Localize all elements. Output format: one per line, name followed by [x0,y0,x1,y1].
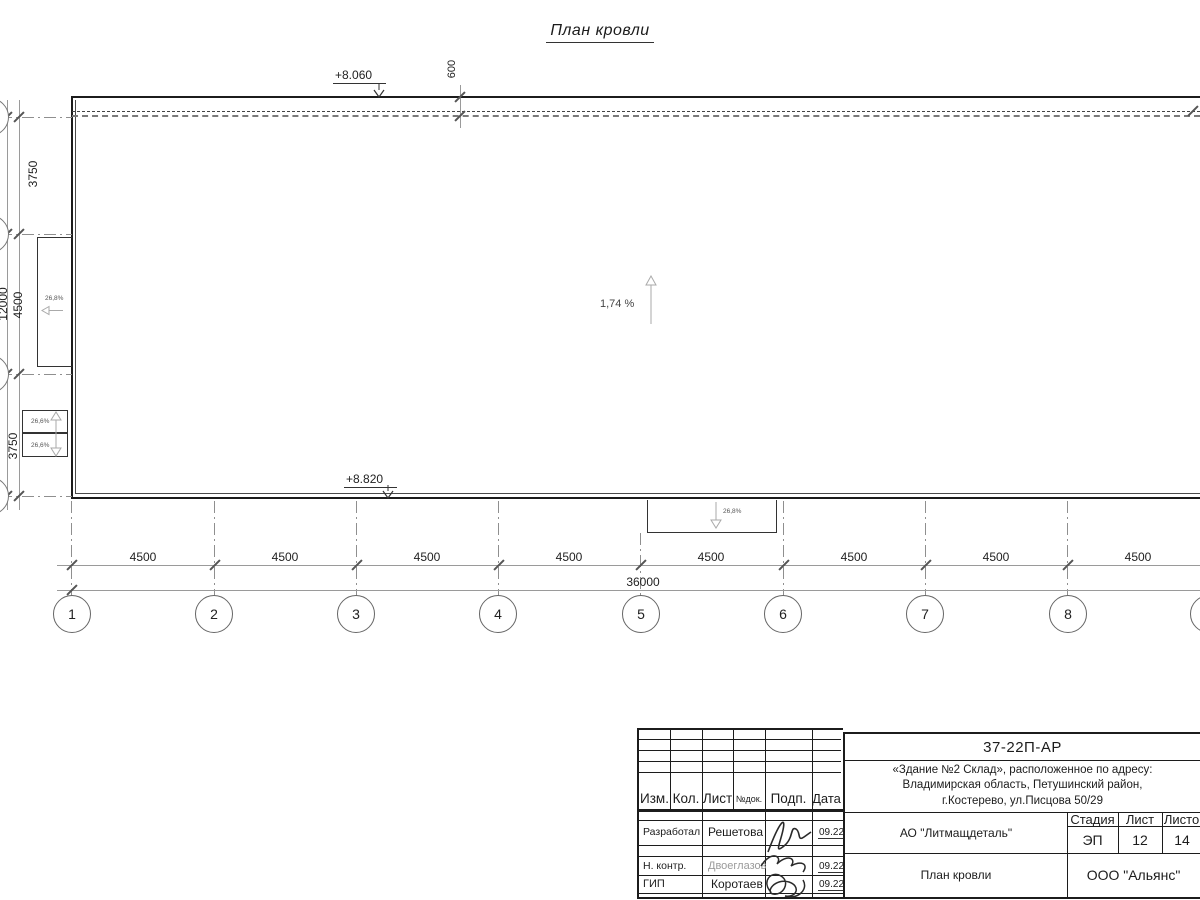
row-line-d [0,496,72,497]
tb-line [702,812,703,897]
left-canopy-slope-label: 26,8% [45,295,63,302]
sheets-value-cell: 14 [1162,826,1200,853]
rev-header-kol: Кол. [670,788,702,809]
left-canopy-arrow-icon [41,305,64,316]
elevation-top-arrow-icon [371,84,387,98]
staff-role-developer: Разработал [643,826,700,838]
grid-line-6 [783,501,784,596]
sheet-value: 12 [1132,832,1148,848]
left-lower-double-arrow-icon [50,411,62,457]
left-dim-label-2: 4500 [11,284,25,326]
label: Дата [812,791,841,806]
axis-bubble-8: 8 [1049,595,1087,633]
elevation-bottom-arrow-icon [380,485,396,499]
axis-number: 4 [494,606,502,622]
axis-number: 1 [68,606,76,622]
axis-number: 2 [210,606,218,622]
date-value: 09.22 [818,861,845,873]
bottom-canopy-arrow-icon [710,502,722,529]
row-line-a [0,117,72,118]
drawing-name-cell: План кровли [845,853,1067,897]
main-slope-label: 1,74 % [600,298,634,310]
staff-role-ncontrol: Н. контр. [643,860,686,872]
sheets-value: 14 [1174,832,1190,848]
axis-number: 7 [921,606,929,622]
axis-bubble-6: 6 [764,595,802,633]
axis-bubble-1: 1 [53,595,91,633]
sheets-header-cell: Листов [1162,812,1200,826]
doc-number: 37-22П-АР [983,739,1062,756]
bay-dim-label: 4500 [783,550,925,564]
grid-line-2 [214,501,215,596]
bay-dim-label: 4500 [72,550,214,564]
tb-line [639,761,841,762]
titleblock-staff-table: Разработал Решетова 09.22 Н. контр. Двое… [637,811,843,899]
main-slope-arrow-icon [645,275,657,325]
sheet-value-cell: 12 [1118,826,1162,853]
label: №док. [736,794,762,804]
project-address-cell: «Здание №2 Склад», расположенное по адре… [845,760,1200,812]
row-line-c [0,374,72,375]
axis-number: 3 [352,606,360,622]
parapet-dashed-line-2 [72,115,1200,117]
bay-dim-label: 4500 [214,550,356,564]
left-canopy-outline [37,237,72,367]
sheet-header-cell: Лист [1118,812,1162,826]
staff-date-gip: 09.22 [818,879,845,890]
label: Лист [703,791,732,806]
staff-role-gip: ГИП [643,878,665,890]
stage-label: Стадия [1070,812,1114,827]
bay-dim-label: 4500 [925,550,1067,564]
label: Подп. [771,791,807,806]
building-outline [71,96,1200,499]
rev-header-podp: Подп. [765,788,812,809]
stage-value: ЭП [1082,832,1102,848]
left-total-dim-label: 12000 [0,279,10,329]
rev-header-list: Лист [702,788,733,809]
drawing-sheet: План кровли 600 +8.060 +8.820 1,74 % 26,… [0,0,1200,900]
axis-bubble-9-partial [1190,595,1200,633]
left-dim-label-3: 3750 [6,425,20,467]
grid-line-8 [1067,501,1068,596]
axis-bubble-7: 7 [906,595,944,633]
elevation-top-label: +8.060 [333,68,386,84]
address-line-2: Владимирская область, Петушинский район, [892,778,1152,794]
page-title-text: План кровли [546,22,653,43]
parapet-offset-label: 600 [446,49,458,89]
bay-dim-label: 4500 [356,550,498,564]
building-inner-bottom-line [75,493,1200,494]
grid-line-7 [925,501,926,596]
axis-bubble-5: 5 [622,595,660,633]
staff-date-developer: 09.22 [818,827,845,838]
page-title: План кровли [460,22,740,40]
rev-header-data: Дата [812,788,841,809]
signature-ncontrol-gip [757,846,817,900]
grid-line-3 [356,501,357,596]
contractor-cell: ООО "Альянс" [1067,853,1200,897]
staff-name-gip: Коротаев [711,877,763,891]
left-lower-slope-label-1: 26,6% [31,418,49,425]
parapet-dashed-line-1 [72,111,1200,112]
axis-number: 5 [637,606,645,622]
axis-bubble-3: 3 [337,595,375,633]
rev-header-ndok: №док. [733,788,765,809]
building-inner-left-line [75,100,76,494]
titleblock-main: 37-22П-АР «Здание №2 Склад», расположенн… [843,732,1200,899]
rev-header-izm: Изм. [639,788,670,809]
date-value: 09.22 [818,879,845,891]
row-line-b [0,234,72,235]
contractor-name: ООО "Альянс" [1087,867,1181,883]
label: Кол. [673,791,700,806]
address-line-3: г.Костерево, ул.Писцова 50/29 [892,794,1152,810]
left-lower-slope-label-2: 26,6% [31,442,49,449]
bottom-canopy-slope-label: 26,8% [723,508,741,515]
axis-bubble-4: 4 [479,595,517,633]
bay-dim-line [57,565,1200,566]
customer-name: АО "Литмащдеталь" [900,826,1012,840]
project-address: «Здание №2 Склад», расположенное по адре… [892,763,1152,810]
tb-line [639,739,841,740]
stage-header-cell: Стадия [1067,812,1118,826]
bay-dim-label: 4500 [498,550,640,564]
customer-cell: АО "Литмащдеталь" [845,812,1067,853]
axis-number: 8 [1064,606,1072,622]
axis-number: 6 [779,606,787,622]
staff-date-ncontrol: 09.22 [818,861,845,872]
address-line-1: «Здание №2 Склад», расположенное по адре… [892,763,1152,779]
axis-bubble-2: 2 [195,595,233,633]
bay-dim-label: 4500 [640,550,782,564]
label: Изм. [640,791,669,806]
date-value: 09.22 [818,827,845,839]
staff-name-developer: Решетова [708,825,763,839]
sheet-label: Лист [1126,812,1154,827]
bay-dim-label: 4500 [1067,550,1200,564]
stage-value-cell: ЭП [1067,826,1118,853]
tb-line [639,772,841,773]
titleblock-revision-table: Изм. Кол. Лист №док. Подп. Дата [637,728,843,811]
left-dim-label-1: 3750 [26,153,40,195]
parapet-dim-line [460,85,461,128]
doc-number-cell: 37-22П-АР [845,734,1200,760]
total-dim-line [57,590,1200,591]
tb-line [639,750,841,751]
drawing-name: План кровли [921,868,992,882]
total-dim-label: 36000 [613,575,673,589]
grid-line-4 [498,501,499,596]
grid-line-1 [71,501,72,596]
sheets-label: Листов [1164,812,1200,827]
